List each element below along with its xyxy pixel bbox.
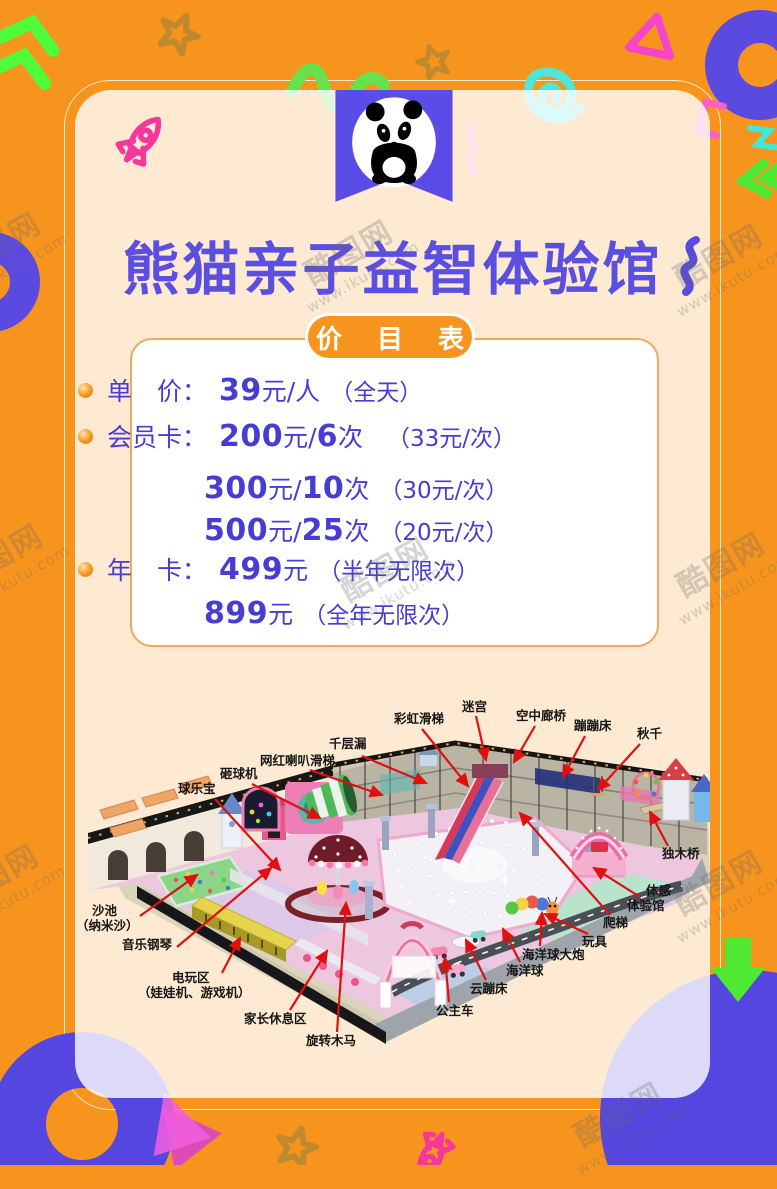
price-label: 会员卡： — [107, 418, 219, 454]
facility-label: 爬梯 — [603, 916, 628, 930]
price-row: 300 元/ 10 次 （30元/次） — [204, 470, 508, 506]
facility-label: 沙池 — [92, 904, 117, 918]
price-value: 6 — [317, 419, 338, 454]
price-value: 200 — [219, 419, 283, 454]
price-row: 会员卡： 200 元/ 6 次 （33元/次） — [78, 418, 516, 454]
bullet-icon — [78, 383, 93, 398]
facility-label: 公主车 — [436, 1004, 474, 1018]
price-note: （全天） — [330, 373, 422, 407]
facility-label: 电玩区 — [172, 971, 210, 985]
price-value: 499 — [219, 552, 283, 587]
facility-label: （纳米沙） — [76, 919, 139, 933]
price-note: （33元/次） — [387, 419, 516, 453]
bullet-icon — [78, 429, 93, 444]
facility-label: 体验馆 — [627, 899, 665, 913]
price-value: 899 — [204, 596, 268, 631]
price-label: 年 卡： — [107, 551, 219, 587]
price-note: （全年无限次） — [303, 596, 464, 630]
playground-illustration — [80, 690, 710, 1070]
facility-label: 球乐宝 — [178, 782, 216, 796]
price-unit: 元/人 — [262, 372, 320, 408]
watermark: 酷图网www.ikutu.com — [533, 1051, 711, 1189]
price-value: 39 — [219, 373, 262, 408]
facility-label: 网红喇叭滑梯 — [260, 754, 335, 768]
facility-label: 彩虹滑梯 — [394, 712, 444, 726]
price-unit: 元/ — [268, 470, 301, 506]
facility-label: （娃娃机、游戏机） — [138, 986, 251, 1000]
price-value: 300 — [204, 471, 268, 506]
facility-label: 海洋球大炮 — [522, 948, 585, 962]
price-row: 500 元/ 25 次 （20元/次） — [204, 512, 508, 548]
price-value: 10 — [302, 471, 345, 506]
poster-title: 熊猫亲子益智体验馆 — [75, 224, 710, 306]
bullet-icon — [78, 562, 93, 577]
playground-map: 彩虹滑梯 迷宫 空中廊桥 蹦蹦床 秋千 千层漏 网红喇叭滑梯 砸球机 球乐宝 沙… — [80, 690, 710, 1070]
price-list-header: 价 目 表 — [308, 316, 472, 358]
facility-label: 蹦蹦床 — [574, 719, 612, 733]
price-value: 500 — [204, 513, 268, 548]
price-row: 年 卡： 499 元 （半年无限次） — [78, 551, 479, 587]
price-value: 25 — [302, 513, 345, 548]
price-unit: 次 — [344, 512, 369, 548]
facility-label: 海洋球 — [506, 964, 544, 978]
facility-label: 云蹦床 — [470, 982, 508, 996]
price-unit: 元/ — [283, 418, 316, 454]
price-unit: 元/ — [268, 512, 301, 548]
price-note: （20元/次） — [379, 513, 508, 547]
facility-label: 旋转木马 — [306, 1034, 356, 1048]
price-note: （半年无限次） — [318, 552, 479, 586]
price-row: 单 价： 39 元/人 （全天） — [78, 372, 422, 408]
facility-label: 迷宫 — [462, 700, 487, 714]
watermark: 酷图网www.ikutu.com — [0, 813, 87, 952]
facility-label: 独木桥 — [662, 847, 700, 861]
price-label: 单 价： — [107, 372, 219, 408]
facility-label: 玩具 — [582, 935, 607, 949]
facility-label: 千层漏 — [329, 737, 367, 751]
facility-label: 体感 — [646, 884, 671, 898]
price-unit: 元 — [283, 551, 308, 587]
panda-ribbon — [334, 90, 454, 205]
facility-label: 秋千 — [637, 727, 662, 741]
panda-logo-icon — [352, 97, 436, 187]
facility-label: 音乐钢琴 — [122, 938, 172, 952]
facility-label: 砸球机 — [220, 767, 258, 781]
price-note: （30元/次） — [379, 471, 508, 505]
price-unit: 元 — [268, 595, 293, 631]
facility-label: 空中廊桥 — [516, 709, 566, 723]
price-unit: 次 — [344, 470, 369, 506]
price-unit: 次 — [338, 418, 363, 454]
price-row: 899 元 （全年无限次） — [204, 595, 464, 631]
facility-label: 家长休息区 — [244, 1012, 307, 1026]
